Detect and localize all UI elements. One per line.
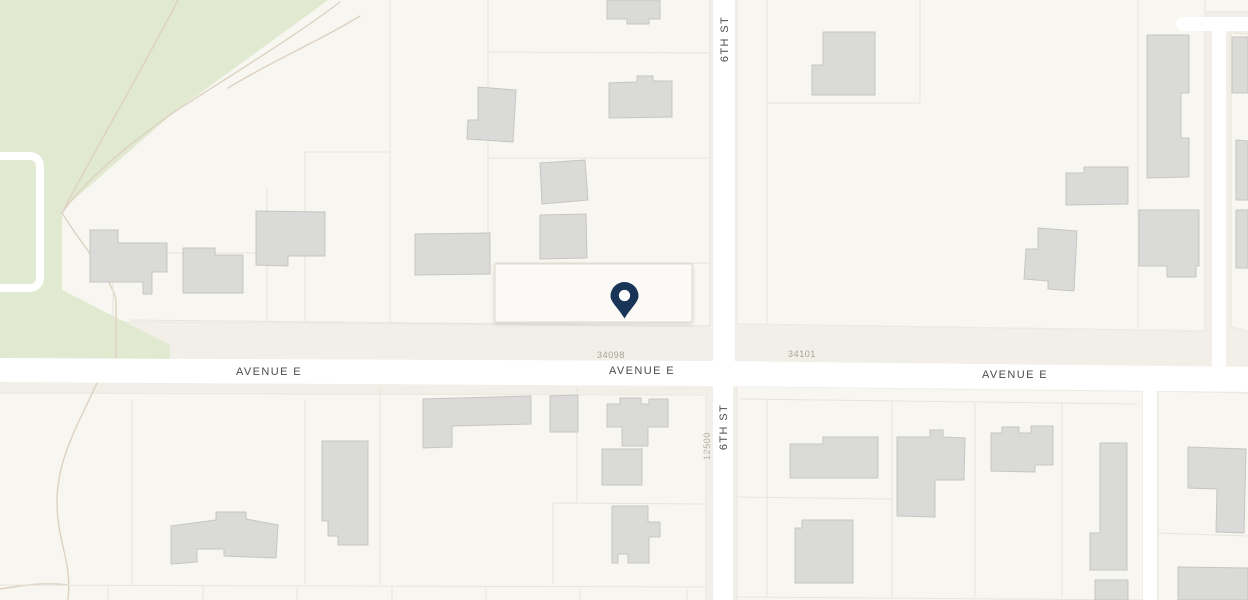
street-label-avenue-e-east: AVENUE E [982, 369, 1048, 381]
street-label-6th-st-north: 6TH ST [719, 16, 731, 62]
street-label-6th-st-south: 6TH ST [718, 404, 730, 450]
building [540, 160, 588, 204]
building [1095, 580, 1128, 600]
street-label-avenue-e-center: AVENUE E [609, 365, 675, 377]
building [1236, 210, 1248, 268]
alley-north-vertical [1212, 24, 1226, 367]
building [1236, 140, 1248, 200]
parcel-number-34101: 34101 [788, 349, 816, 359]
building [1066, 167, 1128, 205]
building [602, 449, 642, 485]
map-viewport[interactable]: AVENUE E AVENUE E AVENUE E 6TH ST 6TH ST… [0, 0, 1248, 600]
selected-parcel[interactable] [495, 264, 692, 322]
building [609, 76, 672, 118]
building [1232, 37, 1248, 93]
parcel-number-34098: 34098 [597, 350, 625, 360]
building [415, 233, 490, 275]
building [183, 248, 243, 293]
building [795, 520, 853, 583]
block-northeast-corner [1205, 0, 1248, 12]
alley-south-vertical [1143, 390, 1157, 600]
building [540, 214, 587, 259]
block-northeast [737, 0, 1205, 331]
map-canvas[interactable]: AVENUE E AVENUE E AVENUE E 6TH ST 6TH ST… [0, 0, 1248, 600]
location-pin-dot [619, 290, 630, 301]
street-label-avenue-e-west: AVENUE E [236, 366, 302, 378]
building [550, 395, 578, 432]
parcel-number-12500: 12500 [702, 432, 712, 460]
building [1178, 567, 1248, 600]
building [322, 441, 368, 545]
building [991, 426, 1053, 472]
